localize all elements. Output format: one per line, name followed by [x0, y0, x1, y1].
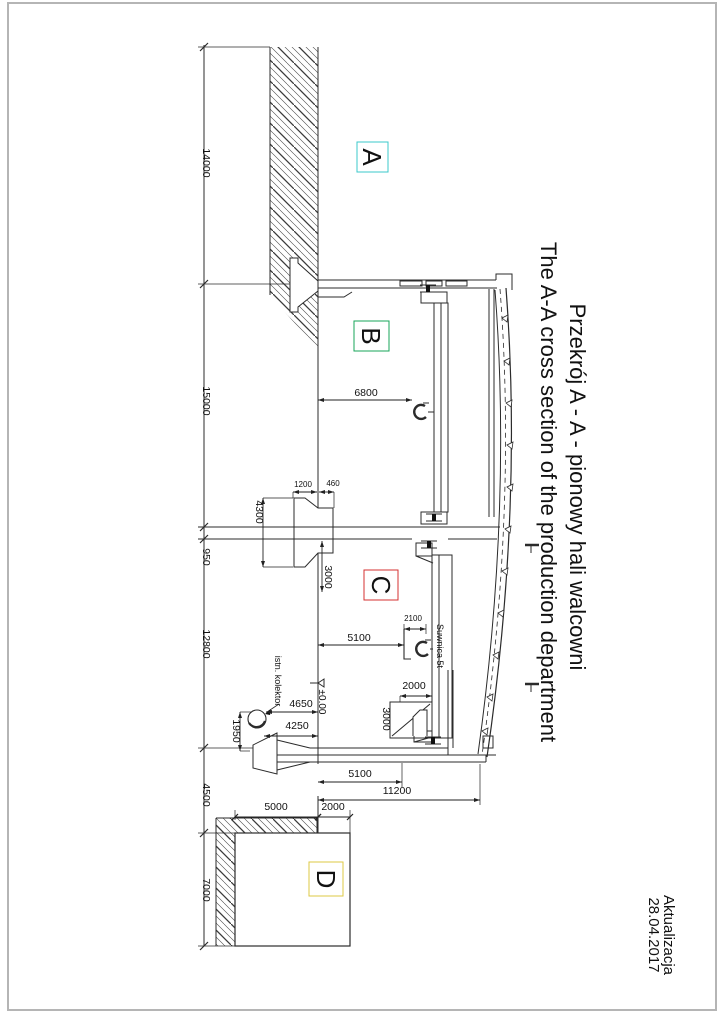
- zone-letter: A: [357, 148, 387, 166]
- dim-text: 5100: [348, 768, 372, 780]
- collector-label: istn. kolektor: [273, 656, 283, 707]
- dim-text: 5100: [347, 632, 371, 644]
- pit-hatch-top: [235, 818, 317, 833]
- title-polish: Przekrój A - A - pionowy hali walcowni: [565, 304, 590, 671]
- dim-text: 4500: [200, 783, 212, 807]
- dim-text: 4300: [253, 500, 265, 524]
- dim-text: 12800: [200, 629, 212, 658]
- dim-text: 1950: [230, 719, 242, 743]
- dimension-14000: 14000: [200, 148, 212, 177]
- dim-text: 4650: [289, 698, 313, 710]
- dim-text: 4250: [285, 720, 309, 732]
- dim-text: 2000: [321, 801, 345, 813]
- dim-text: 2100: [404, 614, 422, 623]
- dimension-12800: 12800: [200, 629, 212, 658]
- crane-rail-icon: [427, 541, 431, 548]
- zone-letter: C: [366, 576, 396, 595]
- dim-text: 950: [200, 548, 212, 566]
- zone-letter: D: [311, 870, 341, 889]
- drawing-page: 1400015000950128004500700068001200460430…: [0, 0, 724, 1024]
- crane-rail-icon: [432, 514, 436, 521]
- dim-text: 1200: [294, 480, 312, 489]
- dim-text: 3000: [380, 707, 392, 731]
- crane-label: Suwnica 5t: [435, 624, 445, 669]
- dimension-950: 950: [200, 548, 212, 566]
- title-english: The A-A cross section of the production …: [536, 242, 561, 742]
- dim-text: 5000: [264, 801, 288, 813]
- level-label: ±0.00: [316, 690, 327, 715]
- dim-text: 14000: [200, 148, 212, 177]
- crane-rail-icon: [426, 285, 430, 292]
- dim-text: 15000: [200, 386, 212, 415]
- dim-text: 11200: [383, 785, 412, 797]
- dim-text: 7000: [200, 878, 212, 902]
- dimension-4500: 4500: [200, 783, 212, 807]
- dimension-3000: 3000: [380, 707, 392, 731]
- crane-bracket-b-top: [421, 292, 447, 303]
- dim-text: 2000: [402, 680, 426, 692]
- dim-text: 460: [326, 479, 340, 488]
- dim-text: 6800: [354, 387, 378, 399]
- cross-section-drawing: 1400015000950128004500700068001200460430…: [0, 0, 724, 1024]
- crane-rail-icon: [431, 737, 435, 744]
- pit-hatch-left: [216, 818, 235, 946]
- dimension-15000: 15000: [200, 386, 212, 415]
- revision-date: 28.04.2017: [645, 897, 662, 972]
- dim-text: 3000: [322, 565, 334, 589]
- dimension-7000: 7000: [200, 878, 212, 902]
- zone-letter: B: [356, 327, 386, 344]
